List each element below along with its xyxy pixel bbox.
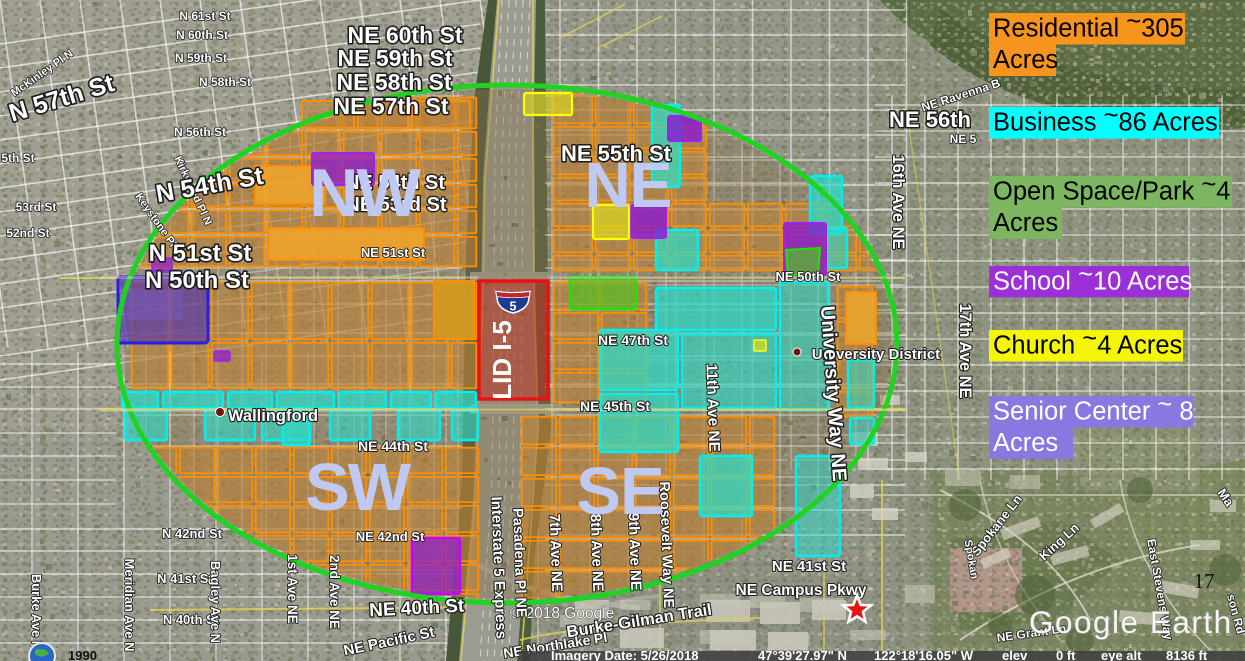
svg-text:2nd Ave NE: 2nd Ave NE	[327, 555, 342, 629]
svg-text:NE 5: NE 5	[950, 132, 977, 146]
svg-text:Acres: Acres	[993, 209, 1058, 237]
svg-text:Bagley Ave N: Bagley Ave N	[208, 561, 223, 643]
svg-text:N 58th St: N 58th St	[199, 75, 251, 89]
svg-text:N 61st St: N 61st St	[179, 9, 230, 23]
svg-text:elev: elev	[1002, 648, 1028, 661]
svg-text:N 42nd St: N 42nd St	[162, 526, 223, 541]
svg-text:16th Ave NE: 16th Ave NE	[889, 154, 907, 249]
svg-text:SW: SW	[305, 450, 412, 525]
svg-text:NE 41st St: NE 41st St	[772, 558, 846, 575]
svg-text:Acres: Acres	[993, 429, 1058, 457]
svg-text:N 60th St: N 60th St	[176, 28, 228, 42]
svg-text:7th Ave NE: 7th Ave NE	[546, 514, 566, 593]
svg-text:eye alt: eye alt	[1101, 648, 1142, 661]
svg-text:NE 42nd St: NE 42nd St	[356, 529, 425, 544]
svg-text:NE 58th St: NE 58th St	[336, 69, 451, 95]
svg-text:Wallingford: Wallingford	[228, 407, 318, 425]
svg-text:NE 57th St: NE 57th St	[333, 93, 448, 119]
svg-text:5: 5	[510, 300, 517, 314]
svg-text:Meridian Ave N: Meridian Ave N	[122, 559, 137, 652]
svg-text:NE 50th St: NE 50th St	[775, 269, 841, 284]
svg-text:NE 51st St: NE 51st St	[361, 245, 426, 260]
svg-text:N 56th St: N 56th St	[174, 125, 226, 139]
svg-text:17: 17	[1194, 569, 1215, 593]
svg-text:NE: NE	[585, 149, 672, 221]
svg-text:53rd St: 53rd St	[16, 200, 57, 214]
svg-text:N 59th St: N 59th St	[175, 51, 227, 65]
svg-text:LID I-5: LID I-5	[487, 320, 517, 399]
svg-text:N 51st St: N 51st St	[149, 240, 252, 267]
svg-text:17th Ave NE: 17th Ave NE	[956, 303, 974, 398]
svg-text:NE Campus Pkwy: NE Campus Pkwy	[736, 582, 867, 599]
svg-text:NW: NW	[309, 155, 421, 231]
svg-text:52nd St: 52nd St	[6, 226, 49, 240]
svg-text:1st Ave NE: 1st Ave NE	[285, 554, 300, 624]
svg-text:NE 47th St: NE 47th St	[598, 332, 668, 348]
svg-text:122°18'16.05" W: 122°18'16.05" W	[874, 648, 974, 661]
svg-text:5th St: 5th St	[1, 151, 34, 165]
svg-text:N 41st St: N 41st St	[157, 571, 213, 586]
svg-text:Imagery Date: 5/26/2018: Imagery Date: 5/26/2018	[551, 648, 698, 661]
svg-text:Burke Ave N: Burke Ave N	[29, 574, 44, 650]
svg-text:1990: 1990	[68, 648, 97, 661]
svg-text:8136 ft: 8136 ft	[1166, 648, 1208, 661]
svg-text:11th Ave NE: 11th Ave NE	[702, 363, 722, 452]
svg-text:0 ft: 0 ft	[1056, 648, 1076, 661]
svg-text:NE 59th St: NE 59th St	[337, 45, 452, 71]
svg-text:SE: SE	[576, 454, 663, 529]
svg-text:Acres: Acres	[993, 46, 1058, 74]
svg-text:Google Earth: Google Earth	[1029, 604, 1233, 640]
svg-text:47°39'27.97" N: 47°39'27.97" N	[758, 648, 847, 661]
svg-text:NE 45th St: NE 45th St	[580, 398, 650, 414]
svg-text:N 50th St: N 50th St	[145, 267, 249, 294]
